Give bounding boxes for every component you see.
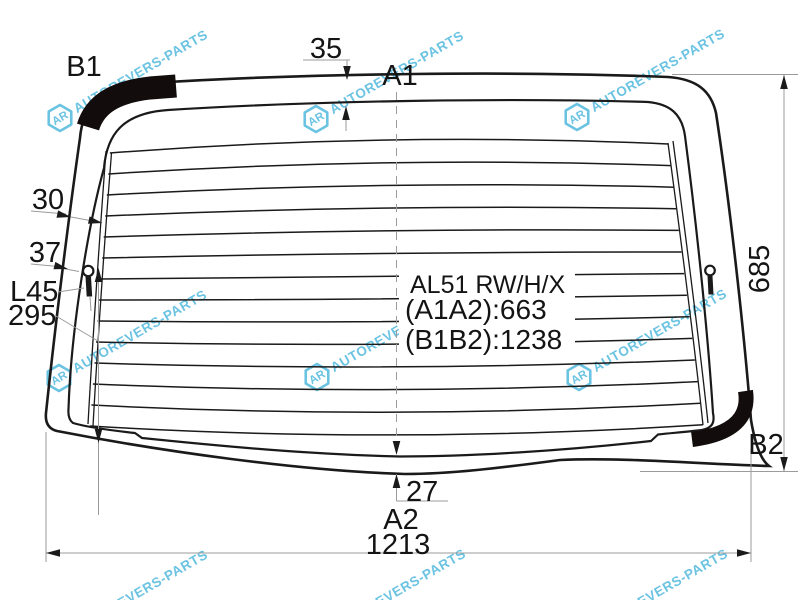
defroster-line	[110, 139, 668, 153]
defroster-line	[108, 162, 671, 174]
defroster-line	[91, 403, 700, 412]
watermark: ARAUTOREVERS-PARTS	[43, 544, 212, 600]
part-dim-a1a2: (A1A2):663	[405, 294, 547, 325]
defroster-line	[105, 207, 676, 216]
label-dim35: 35	[310, 33, 342, 65]
label-dim685: 685	[744, 245, 776, 293]
dim1213-arrow-left	[46, 549, 60, 557]
right-connector-terminal-icon	[705, 266, 715, 276]
watermark-brand-text: AUTOREVERS-PARTS	[71, 547, 210, 600]
part-dim-b1b2: (B1B2):1238	[405, 324, 562, 355]
left-connector-terminal-icon	[83, 266, 93, 276]
defroster-line	[102, 252, 681, 258]
label-b2: B2	[748, 429, 783, 461]
watermark: ARAUTOREVERS-PARTS	[563, 543, 732, 600]
defroster-line	[104, 230, 679, 237]
dim35-arrow-down	[343, 66, 351, 80]
defroster-line	[101, 274, 685, 279]
left-connector-tail	[90, 297, 91, 311]
watermark: ARAUTOREVERS-PARTS	[562, 283, 731, 394]
right-connector-bar-icon	[708, 276, 714, 295]
label-b1: B1	[66, 51, 101, 83]
rear-window-diagram-page: ARAUTOREVERS-PARTSARAUTOREVERS-PARTSARAU…	[0, 0, 800, 600]
corner-mark-b1	[88, 86, 176, 127]
watermark: ARAUTOREVERS-PARTS	[560, 23, 729, 134]
label-dim30: 30	[32, 184, 64, 216]
defroster-line	[98, 317, 690, 322]
defroster-line	[93, 382, 698, 390]
left-connector-bar-icon	[86, 277, 93, 297]
label-dim295: 295	[8, 300, 56, 332]
label-dim37: 37	[29, 237, 61, 269]
label-a1: A1	[382, 60, 417, 92]
part-info: AL51 RW/H/X (A1A2):663 (B1B2):1238	[405, 271, 565, 355]
dim295-arrow-up	[95, 268, 103, 282]
rear-window-diagram: ARAUTOREVERS-PARTSARAUTOREVERS-PARTSARAU…	[0, 0, 800, 600]
defroster-line	[107, 185, 674, 195]
watermark-brand-text: AUTOREVERS-PARTS	[591, 546, 730, 600]
dim27-arrow-down	[393, 441, 401, 455]
dim295-arrow-down	[95, 429, 103, 443]
left-connector	[83, 266, 93, 311]
dim27-arrow-up	[393, 474, 401, 488]
dim1213-arrow-right	[737, 549, 751, 557]
dim295-leader	[56, 316, 98, 341]
label-dim1213: 1213	[366, 529, 431, 561]
dim685-arrow-up	[780, 75, 788, 89]
